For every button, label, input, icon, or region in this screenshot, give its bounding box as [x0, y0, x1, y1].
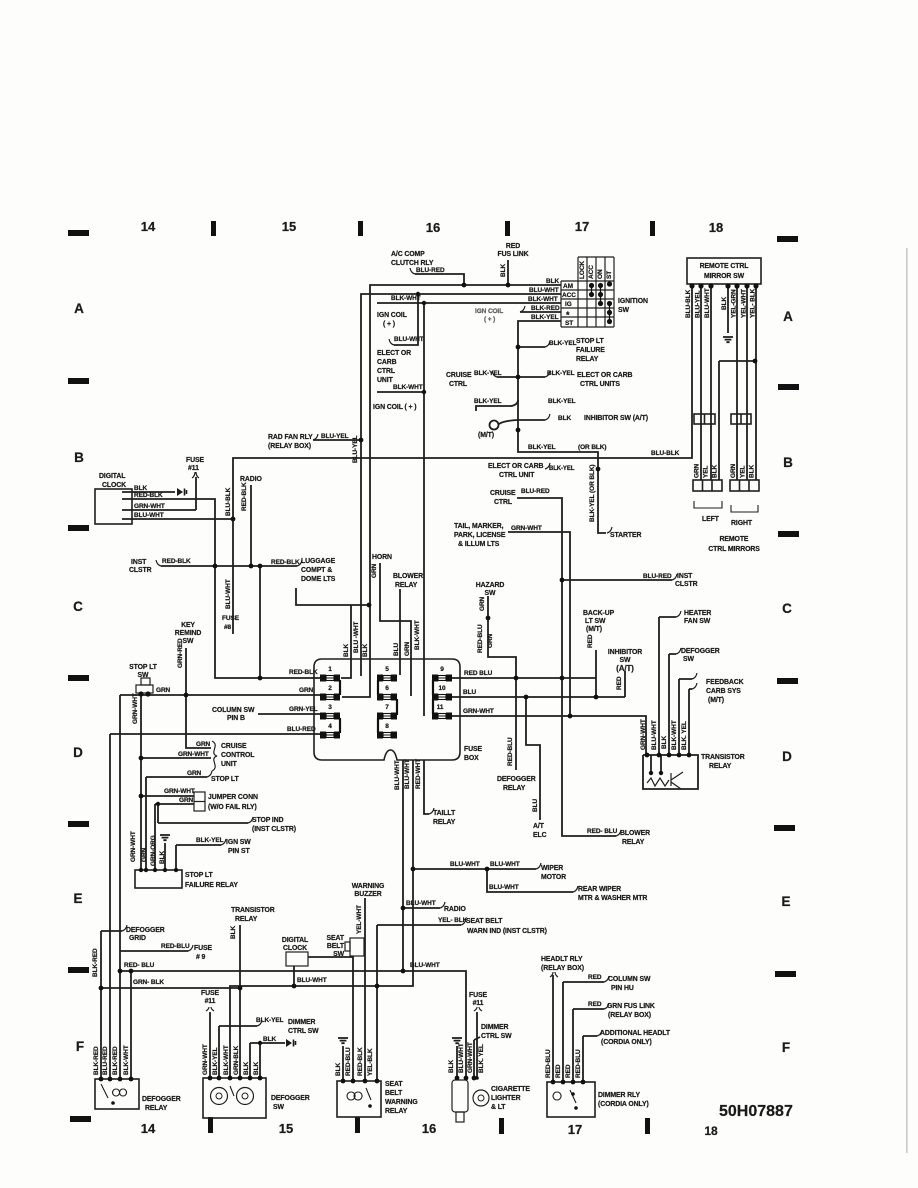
svg-text:RED-BLU: RED-BLU — [161, 943, 190, 950]
svg-text:SW: SW — [620, 657, 631, 664]
svg-text:GRN- BLK: GRN- BLK — [133, 979, 164, 986]
svg-text:SW: SW — [618, 307, 629, 314]
svg-text:RED-BLK: RED-BLK — [271, 559, 300, 566]
svg-text:BLK-RED: BLK-RED — [92, 948, 99, 977]
svg-text:TAIL, MARKER,: TAIL, MARKER, — [454, 523, 504, 530]
svg-text:BLK: BLK — [159, 851, 166, 864]
svg-text:ELECT OR CARB: ELECT OR CARB — [488, 463, 543, 470]
svg-text:BLK: BLK — [230, 926, 237, 939]
svg-text:GRN: GRN — [487, 633, 494, 648]
svg-text:BLOWER: BLOWER — [393, 573, 423, 580]
svg-text:8: 8 — [385, 723, 389, 730]
svg-text:STOP LT: STOP LT — [129, 664, 158, 671]
svg-text:15: 15 — [279, 1121, 293, 1136]
svg-text:BLU-WHT: BLU-WHT — [394, 336, 424, 343]
svg-text:BLK-YEL: BLK-YEL — [531, 314, 559, 321]
svg-text:SEAT: SEAT — [385, 1081, 403, 1088]
svg-text:INHIBITOR: INHIBITOR — [608, 649, 642, 656]
svg-text:GRN: GRN — [141, 847, 148, 862]
svg-text:1: 1 — [328, 666, 332, 673]
svg-text:RAD FAN RLY: RAD FAN RLY — [268, 434, 313, 441]
svg-text:RELAY: RELAY — [576, 356, 599, 363]
svg-text:ACC: ACC — [562, 292, 576, 299]
svg-text:YEL-GRN: YEL-GRN — [731, 289, 738, 318]
svg-text:(CORDIA ONLY): (CORDIA ONLY) — [598, 1101, 649, 1108]
svg-text:BLK: BLK — [362, 644, 369, 657]
svg-text:UNIT: UNIT — [221, 761, 238, 768]
svg-text:RED- BLU: RED- BLU — [124, 962, 155, 969]
svg-text:BLU-WHT: BLU-WHT — [458, 1043, 465, 1073]
svg-text:ELECT OR CARB: ELECT OR CARB — [577, 372, 632, 379]
svg-text:GRN: GRN — [196, 741, 211, 748]
svg-text:RELAY: RELAY — [503, 785, 526, 792]
svg-text:IGN SW: IGN SW — [226, 839, 251, 846]
svg-text:MTR & WASHER MTR: MTR & WASHER MTR — [578, 895, 647, 902]
svg-text:HAZARD: HAZARD — [476, 582, 505, 589]
svg-text:GRN-ORG: GRN-ORG — [150, 835, 157, 866]
svg-text:BLU-WHT: BLU-WHT — [410, 962, 440, 969]
svg-text:CONTROL: CONTROL — [221, 752, 254, 759]
svg-text:SW: SW — [333, 951, 344, 958]
svg-text:STOP LT: STOP LT — [211, 776, 240, 783]
svg-text:BLU-YEL: BLU-YEL — [321, 433, 349, 440]
svg-text:18: 18 — [704, 1124, 718, 1138]
svg-text:BLK: BLK — [749, 465, 756, 478]
svg-text:CRUISE: CRUISE — [490, 490, 516, 497]
svg-text:BLK-WHT: BLK-WHT — [414, 620, 421, 650]
svg-text:BUZZER: BUZZER — [354, 891, 381, 898]
svg-text:F: F — [782, 1040, 790, 1055]
svg-text:E: E — [781, 894, 790, 909]
svg-text:BLU-BLK: BLU-BLK — [225, 487, 232, 516]
svg-text:BLK: BLK — [134, 485, 147, 492]
svg-text:IGN COIL: IGN COIL — [377, 312, 407, 319]
svg-text:2: 2 — [328, 685, 332, 692]
svg-text:16: 16 — [422, 1121, 436, 1136]
svg-text:FAILURE RELAY: FAILURE RELAY — [185, 882, 238, 889]
svg-text:CLSTR: CLSTR — [675, 581, 698, 588]
svg-text:CRUISE: CRUISE — [221, 743, 247, 750]
svg-text:GRID: GRID — [129, 935, 146, 942]
svg-text:FUSE: FUSE — [201, 990, 219, 997]
svg-text:F: F — [76, 1039, 84, 1054]
svg-text:E: E — [73, 891, 82, 906]
svg-text:YEL-BLK: YEL-BLK — [367, 1048, 374, 1076]
svg-text:BLU-WHT: BLU-WHT — [450, 861, 480, 868]
svg-text:REMIND: REMIND — [175, 630, 202, 637]
svg-text:RELAY: RELAY — [235, 916, 258, 923]
svg-text:FUSE: FUSE — [194, 945, 212, 952]
svg-text:BLK-RED: BLK-RED — [112, 1046, 119, 1075]
svg-text:18: 18 — [709, 220, 723, 235]
svg-text:BLK-WHT: BLK-WHT — [391, 295, 421, 302]
svg-text:BLK-WHT: BLK-WHT — [123, 1045, 130, 1075]
svg-text:BLK-YEL: BLK-YEL — [474, 398, 502, 405]
svg-text:BOX: BOX — [464, 755, 479, 762]
svg-text:BLK: BLK — [253, 1062, 260, 1075]
svg-text:& ILLUM LTS: & ILLUM LTS — [458, 541, 500, 548]
svg-text:IG: IG — [565, 301, 572, 308]
svg-text:GRN: GRN — [179, 797, 194, 804]
svg-text:BLU-BLK: BLU-BLK — [651, 450, 680, 457]
svg-text:BACK-UP: BACK-UP — [583, 610, 615, 617]
svg-text:10: 10 — [438, 685, 446, 692]
svg-text:(M/T): (M/T) — [478, 432, 494, 439]
svg-text:BLK-YEL (OR BLK): BLK-YEL (OR BLK) — [589, 465, 596, 523]
svg-text:FUSE: FUSE — [469, 992, 487, 999]
svg-text:(W/O FAIL RLY): (W/O FAIL RLY) — [208, 804, 257, 811]
svg-text:YEL-WHT: YEL-WHT — [356, 905, 363, 934]
svg-text:DEFOGGER: DEFOGGER — [126, 927, 165, 934]
svg-text:DEFOGGER: DEFOGGER — [271, 1095, 310, 1102]
svg-text:BLK: BLK — [448, 1060, 455, 1073]
svg-text:RELAY: RELAY — [433, 819, 456, 826]
svg-text:DIGITAL: DIGITAL — [282, 937, 308, 944]
svg-text:BLU-WHT: BLU-WHT — [704, 288, 711, 318]
svg-text:(M/T): (M/T) — [708, 697, 724, 704]
svg-text:RELAY: RELAY — [622, 839, 645, 846]
svg-text:(RELAY BOX): (RELAY BOX) — [541, 965, 584, 972]
svg-text:BLK-RED: BLK-RED — [531, 305, 560, 312]
svg-text:DIMMER: DIMMER — [481, 1024, 508, 1031]
svg-text:BLU-WHT: BLU-WHT — [489, 884, 519, 891]
svg-text:BLK: BLK — [546, 278, 559, 285]
svg-text:RED-BLK: RED-BLK — [134, 492, 163, 499]
svg-text:RED-BLK: RED-BLK — [289, 669, 318, 676]
svg-text:CLUTCH RLY: CLUTCH RLY — [391, 260, 434, 267]
svg-text:BLU-RED: BLU-RED — [521, 488, 550, 495]
svg-text:(A/T): (A/T) — [616, 664, 634, 673]
svg-text:GRN-WHT: GRN-WHT — [202, 1044, 209, 1075]
svg-text:GRN-WHT: GRN-WHT — [640, 719, 647, 750]
svg-text:FUSE: FUSE — [186, 457, 204, 464]
svg-text:RED: RED — [506, 243, 520, 250]
svg-text:RED- BLU: RED- BLU — [587, 828, 618, 835]
svg-text:SW: SW — [183, 638, 194, 645]
svg-text:DIMMER: DIMMER — [288, 1019, 315, 1026]
svg-text:REMOTE: REMOTE — [720, 536, 749, 543]
svg-text:5: 5 — [385, 666, 389, 673]
svg-text:BLK. YEL: BLK. YEL — [681, 721, 688, 750]
svg-text:D: D — [73, 745, 83, 760]
svg-text:FAILURE: FAILURE — [576, 347, 605, 354]
svg-text:GRN: GRN — [187, 770, 202, 777]
svg-text:GRN-BLK: GRN-BLK — [233, 1045, 240, 1075]
svg-text:JUMPER CONN: JUMPER CONN — [208, 794, 258, 801]
svg-text:BLU-WHT: BLU-WHT — [394, 760, 401, 790]
svg-text:BLK: BLK — [500, 264, 507, 277]
svg-text:A/T: A/T — [533, 823, 545, 830]
svg-text:A: A — [783, 309, 793, 324]
svg-text:BLU-YEL: BLU-YEL — [352, 435, 359, 463]
svg-text:CTRL: CTRL — [494, 499, 512, 506]
svg-text:CARB SYS: CARB SYS — [706, 688, 741, 695]
svg-text:BLK-YEL: BLK-YEL — [256, 1017, 284, 1024]
svg-text:#11: #11 — [205, 998, 216, 1005]
svg-text:YEL- BLK: YEL- BLK — [750, 288, 757, 318]
svg-text:BLK-YEL: BLK-YEL — [549, 466, 575, 472]
svg-text:17: 17 — [575, 219, 589, 234]
svg-text:GRN: GRN — [371, 563, 378, 578]
svg-text:AM: AM — [563, 283, 573, 290]
svg-text:BLOWER: BLOWER — [620, 830, 650, 837]
svg-text:RED-BLU: RED-BLU — [345, 1047, 352, 1076]
svg-text:CLOCK: CLOCK — [102, 482, 126, 489]
svg-text:BLK-RED: BLK-RED — [93, 1046, 100, 1075]
svg-text:15: 15 — [282, 219, 296, 234]
svg-text:RELAY: RELAY — [709, 763, 732, 770]
svg-text:BLU: BLU — [463, 689, 476, 696]
svg-text:YEL-WHT: YEL-WHT — [741, 289, 748, 318]
svg-text:FUSE: FUSE — [464, 746, 482, 753]
svg-text:FUSE: FUSE — [222, 615, 240, 622]
svg-text:RED: RED — [616, 676, 623, 690]
svg-text:SEAT: SEAT — [327, 935, 345, 942]
svg-text:BLU-WHT: BLU-WHT — [404, 759, 411, 789]
svg-text:BLK-YEL: BLK-YEL — [548, 398, 576, 405]
svg-text:CLSTR: CLSTR — [129, 567, 152, 574]
svg-text:50H07887: 50H07887 — [719, 1103, 793, 1120]
svg-text:GRN-WHT: GRN-WHT — [467, 1042, 474, 1073]
svg-text:WIPER: WIPER — [541, 865, 563, 872]
svg-text:WARNING: WARNING — [385, 1099, 418, 1106]
svg-text:CTRL: CTRL — [449, 381, 467, 388]
svg-text:GRN: GRN — [299, 687, 314, 694]
svg-text:FAN SW: FAN SW — [684, 618, 711, 625]
svg-text:PIN ST: PIN ST — [228, 848, 250, 855]
svg-text:DEFOGGER: DEFOGGER — [497, 776, 536, 783]
svg-text:RADIO: RADIO — [444, 906, 466, 913]
svg-text:RED: RED — [555, 1064, 562, 1078]
svg-text:CIGARETTE: CIGARETTE — [491, 1086, 530, 1093]
svg-text:INST: INST — [677, 573, 693, 580]
svg-text:16: 16 — [426, 220, 440, 235]
svg-text:BLU -WHT: BLU -WHT — [353, 622, 360, 653]
svg-text:ST: ST — [565, 320, 573, 327]
svg-text:GRN-WHT: GRN-WHT — [130, 831, 137, 862]
svg-text:BLK: BLK — [243, 1062, 250, 1075]
svg-text:BLU-WHT: BLU-WHT — [225, 579, 232, 609]
svg-text:YEL- BLK: YEL- BLK — [438, 917, 468, 924]
svg-text:REMOTE CTRL: REMOTE CTRL — [700, 263, 749, 270]
svg-text:RED-BLU: RED-BLU — [575, 1049, 582, 1078]
svg-text:#8: #8 — [224, 624, 232, 631]
svg-text:14: 14 — [141, 219, 156, 234]
svg-text:CTRL UNITS: CTRL UNITS — [580, 381, 620, 388]
svg-text:CTRL SW: CTRL SW — [288, 1028, 319, 1035]
svg-text:IGNITION: IGNITION — [618, 298, 648, 305]
svg-text:BLU-WHT: BLU-WHT — [490, 861, 520, 868]
svg-text:BELT: BELT — [385, 1090, 403, 1097]
svg-text:DEFOGGER: DEFOGGER — [142, 1096, 181, 1103]
svg-text:# 9: # 9 — [196, 954, 206, 961]
svg-text:CTRL MIRRORS: CTRL MIRRORS — [708, 546, 760, 553]
svg-text:BLK: BLK — [558, 415, 571, 422]
svg-text:COMPT &: COMPT & — [301, 567, 332, 574]
svg-text:CARB: CARB — [377, 359, 397, 366]
svg-text:GRN-WHT: GRN-WHT — [132, 693, 139, 724]
svg-text:3: 3 — [328, 704, 332, 711]
svg-text:WARN IND (INST CLSTR): WARN IND (INST CLSTR) — [467, 928, 547, 935]
svg-text:GRN-RED: GRN-RED — [177, 638, 184, 668]
svg-text:( + ): ( + ) — [484, 316, 495, 323]
svg-text:TRANSISTOR: TRANSISTOR — [701, 754, 745, 761]
svg-text:DEFOGGER: DEFOGGER — [681, 648, 720, 655]
svg-text:(M/T): (M/T) — [586, 626, 602, 633]
svg-text:FEEDBACK: FEEDBACK — [706, 679, 744, 686]
svg-text:GRN: GRN — [730, 463, 737, 478]
svg-text:STOP LT: STOP LT — [185, 872, 214, 879]
svg-text:KEY: KEY — [181, 622, 195, 629]
svg-text:11: 11 — [437, 704, 444, 711]
svg-text:RED: RED — [587, 634, 594, 648]
svg-text:BLK-WHT: BLK-WHT — [671, 720, 678, 750]
svg-text:BLK-YEL: BLK-YEL — [528, 444, 556, 451]
svg-text:ACC: ACC — [588, 265, 595, 279]
svg-text:GRN-YEL: GRN-YEL — [289, 706, 318, 713]
svg-text:BLK. YEL: BLK. YEL — [478, 1044, 485, 1073]
svg-text:(INST CLSTR): (INST CLSTR) — [252, 826, 296, 833]
svg-text:RED-BLK: RED-BLK — [357, 1047, 364, 1076]
svg-text:GRN-WHT: GRN-WHT — [134, 503, 165, 510]
svg-text:BLU-RED: BLU-RED — [287, 726, 316, 733]
svg-text:D: D — [782, 749, 792, 764]
svg-text:RED: RED — [565, 1064, 572, 1078]
svg-text:CTRL: CTRL — [377, 368, 395, 375]
svg-text:RED: RED — [588, 1001, 602, 1008]
svg-text:HEADLT RLY: HEADLT RLY — [541, 956, 583, 963]
svg-text:A: A — [74, 301, 84, 316]
svg-text:RED-BLK: RED-BLK — [241, 482, 248, 511]
svg-text:RED-BLU: RED-BLU — [477, 624, 484, 653]
svg-text:BLK: BLK — [335, 1063, 342, 1076]
svg-text:BLU-YEL: BLU-YEL — [695, 290, 702, 318]
svg-text:RELAY: RELAY — [395, 582, 418, 589]
svg-text:GRN: GRN — [479, 596, 486, 611]
svg-text:LIGHTER: LIGHTER — [491, 1095, 521, 1102]
svg-text:COLUMN SW: COLUMN SW — [212, 707, 255, 714]
svg-text:TRANSISTOR: TRANSISTOR — [231, 907, 275, 914]
svg-text:(RELAY BOX): (RELAY BOX) — [268, 443, 311, 450]
svg-text:BLK-WHT: BLK-WHT — [223, 1045, 230, 1075]
svg-text:& LT: & LT — [491, 1104, 506, 1111]
svg-text:GRN: GRN — [404, 641, 411, 656]
svg-text:(OR BLK): (OR BLK) — [578, 444, 606, 451]
svg-text:LT SW: LT SW — [585, 618, 606, 625]
svg-text:RELAY: RELAY — [145, 1105, 168, 1112]
svg-text:B: B — [783, 455, 793, 470]
svg-text:RED-BLK: RED-BLK — [162, 558, 191, 565]
svg-text:CLOCK: CLOCK — [283, 945, 307, 952]
svg-text:RED BLU: RED BLU — [464, 670, 493, 677]
svg-text:RELAY: RELAY — [385, 1108, 408, 1115]
svg-text:BLK-WHT: BLK-WHT — [528, 296, 558, 303]
svg-text:INHIBITOR SW (A/T): INHIBITOR SW (A/T) — [584, 415, 648, 422]
svg-text:BELT: BELT — [327, 943, 345, 950]
svg-text:SW: SW — [273, 1104, 284, 1111]
svg-text:BLK-YEL: BLK-YEL — [474, 370, 502, 377]
svg-text:4: 4 — [328, 723, 332, 730]
svg-text:BLK-YEL: BLK-YEL — [212, 1047, 219, 1075]
svg-text:RED: RED — [588, 974, 602, 981]
svg-text:RADIO: RADIO — [240, 476, 262, 483]
svg-text:BLU-WHT: BLU-WHT — [297, 977, 327, 984]
svg-text:(CORDIA ONLY): (CORDIA ONLY) — [601, 1039, 652, 1046]
svg-text:DIGITAL: DIGITAL — [99, 473, 125, 480]
svg-text:BLK: BLK — [721, 297, 728, 310]
svg-text:TAILLT: TAILLT — [433, 810, 456, 817]
svg-text:BLK: BLK — [712, 465, 719, 478]
svg-text:ELC: ELC — [533, 832, 547, 839]
svg-text:HEATER: HEATER — [684, 610, 711, 617]
svg-text:UNIT: UNIT — [377, 377, 394, 384]
svg-text:ON: ON — [597, 269, 604, 279]
svg-text:GRN FUS LINK: GRN FUS LINK — [607, 1003, 655, 1010]
svg-text:LEFT: LEFT — [702, 516, 720, 523]
svg-text:BLU: BLU — [532, 799, 539, 812]
svg-text:IGN COIL ( + ): IGN COIL ( + ) — [373, 404, 416, 411]
svg-text:YEL: YEL — [703, 466, 710, 478]
svg-text:BLU-BLK: BLU-BLK — [685, 289, 692, 318]
svg-text:PIN B: PIN B — [227, 715, 245, 722]
svg-text:RIGHT: RIGHT — [731, 520, 753, 527]
svg-text:BLU: BLU — [393, 643, 400, 656]
svg-text:DOME LTS: DOME LTS — [301, 576, 336, 583]
svg-text:COLUMN SW: COLUMN SW — [608, 976, 651, 983]
svg-text:WARNING: WARNING — [352, 883, 385, 890]
svg-text:GRN-WHT: GRN-WHT — [463, 708, 494, 715]
svg-text:IGN COIL: IGN COIL — [475, 308, 503, 315]
svg-text:RED-BLU: RED-BLU — [545, 1049, 552, 1078]
svg-text:STOP LT: STOP LT — [576, 338, 605, 345]
svg-text:BLU-WHT: BLU-WHT — [529, 287, 559, 294]
svg-text:CTRL UNIT: CTRL UNIT — [499, 472, 535, 479]
svg-text:GRN-WHT: GRN-WHT — [178, 751, 209, 758]
svg-text:GRN-WHT: GRN-WHT — [511, 525, 542, 532]
svg-text:C: C — [73, 599, 83, 614]
svg-text:BLK: BLK — [343, 644, 350, 657]
svg-text:BLU-WHT: BLU-WHT — [406, 900, 436, 907]
svg-text:BLK-YEL: BLK-YEL — [547, 370, 575, 377]
svg-text:14: 14 — [141, 1121, 156, 1136]
svg-text:ADDITIONAL HEADLT: ADDITIONAL HEADLT — [600, 1030, 671, 1037]
svg-text:MIRROR SW: MIRROR SW — [704, 273, 745, 280]
svg-text:STARTER: STARTER — [610, 532, 641, 539]
svg-text:CTRL SW: CTRL SW — [481, 1033, 512, 1040]
svg-text:(RELAY BOX): (RELAY BOX) — [608, 1012, 651, 1019]
svg-text:YEL: YEL — [740, 466, 747, 478]
svg-text:MOTOR: MOTOR — [541, 874, 566, 881]
svg-text:( + ): ( + ) — [383, 321, 395, 328]
svg-text:BLU-RED: BLU-RED — [102, 1046, 109, 1075]
svg-text:GRN: GRN — [156, 687, 171, 694]
svg-text:6: 6 — [385, 685, 389, 692]
svg-text:BLK: BLK — [661, 736, 668, 749]
svg-text:#11: #11 — [473, 1000, 484, 1007]
svg-text:PIN HU: PIN HU — [611, 985, 634, 992]
svg-text:BLU-WHT: BLU-WHT — [134, 512, 164, 519]
svg-text:SW: SW — [485, 590, 496, 597]
svg-text:BLK-WHT: BLK-WHT — [393, 384, 423, 391]
svg-text:GRN-WHT: GRN-WHT — [164, 788, 195, 795]
svg-text:BLK: BLK — [263, 1036, 276, 1043]
svg-text:SW: SW — [683, 656, 694, 663]
svg-text:A/C COMP: A/C COMP — [391, 251, 425, 258]
svg-text:LOCK: LOCK — [579, 261, 586, 279]
svg-text:*: * — [566, 310, 570, 320]
svg-text:DIMMER RLY: DIMMER RLY — [598, 1092, 641, 1099]
svg-text:17: 17 — [568, 1122, 582, 1137]
